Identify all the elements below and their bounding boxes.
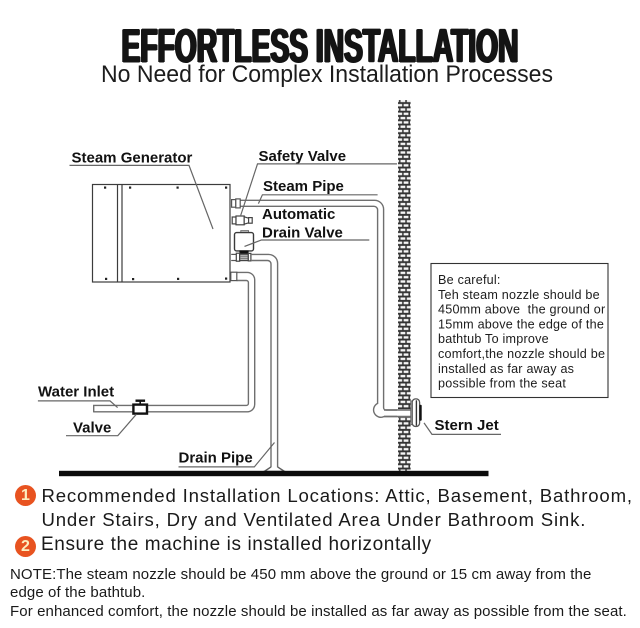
svg-text:Be careful:: Be careful: — [438, 273, 501, 287]
svg-text:Teh steam nozzle should be: Teh steam nozzle should be — [438, 288, 600, 302]
svg-text:Steam Pipe: Steam Pipe — [263, 178, 344, 195]
svg-text:450mm above the ground or: 450mm above the ground or — [438, 303, 605, 317]
svg-text:possible from the seat: possible from the seat — [438, 377, 566, 391]
svg-text:comfort,the nozzle should be: comfort,the nozzle should be — [438, 347, 605, 361]
svg-text:installed as far away as: installed as far away as — [438, 362, 574, 376]
svg-text:Automatic: Automatic — [262, 206, 335, 223]
svg-text:bathtub To improve: bathtub To improve — [438, 332, 549, 346]
svg-text:15mm above the edge of the: 15mm above the edge of the — [438, 317, 604, 331]
svg-text:Steam Generator: Steam Generator — [72, 149, 193, 166]
svg-text:Valve: Valve — [73, 420, 111, 437]
svg-text:Stern Jet: Stern Jet — [435, 417, 499, 434]
svg-text:Drain Valve: Drain Valve — [262, 225, 343, 242]
svg-text:Drain Pipe: Drain Pipe — [179, 449, 253, 466]
svg-text:Water Inlet: Water Inlet — [38, 384, 114, 401]
svg-text:Safety Valve: Safety Valve — [259, 148, 347, 165]
